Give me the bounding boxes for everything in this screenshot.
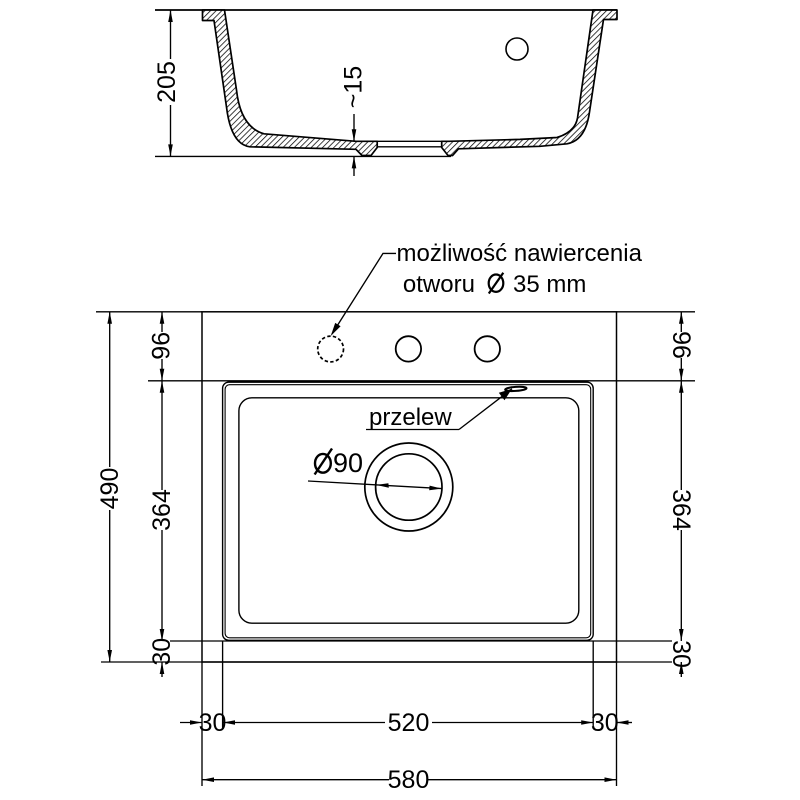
svg-text:96: 96 [667, 331, 695, 359]
svg-text:30: 30 [199, 709, 227, 737]
svg-text:otworu: otworu [403, 271, 475, 298]
svg-text:364: 364 [148, 489, 176, 531]
svg-text:520: 520 [388, 709, 430, 737]
svg-text:możliwość nawiercenia: możliwość nawiercenia [397, 240, 643, 267]
svg-text:580: 580 [388, 766, 430, 794]
svg-text:364: 364 [667, 489, 695, 531]
svg-text:30: 30 [148, 638, 176, 666]
svg-text:30: 30 [591, 709, 619, 737]
svg-text:96: 96 [147, 332, 175, 360]
svg-text:490: 490 [96, 468, 124, 510]
svg-text:przelew: przelew [369, 404, 452, 431]
svg-text:35 mm: 35 mm [513, 271, 586, 298]
svg-text:90: 90 [333, 448, 363, 478]
svg-text:205: 205 [153, 61, 181, 103]
svg-text:~15: ~15 [340, 66, 368, 108]
